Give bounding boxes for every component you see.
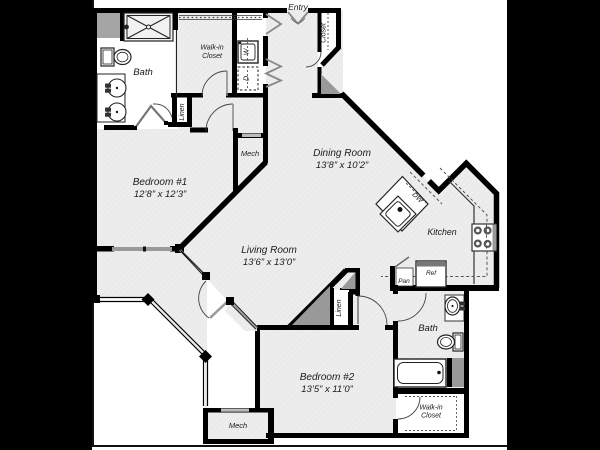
svg-text:Entry: Entry (288, 2, 309, 12)
svg-text:Walk-in: Walk-in (200, 45, 223, 52)
svg-text:Closet: Closet (421, 413, 442, 420)
svg-text:Linen: Linen (179, 103, 186, 120)
svg-text:Closet: Closet (321, 22, 328, 43)
svg-text:Bedroom #2: Bedroom #2 (300, 372, 355, 383)
svg-text:Pan: Pan (398, 278, 410, 285)
svg-text:D: D (244, 76, 251, 81)
svg-text:Bath: Bath (418, 323, 438, 334)
svg-text:Linen: Linen (336, 299, 343, 316)
svg-text:Living Room: Living Room (241, 245, 297, 256)
svg-text:Walk-in: Walk-in (419, 405, 442, 412)
svg-text:12’8” x 12’3”: 12’8” x 12’3” (134, 189, 187, 200)
svg-text:Mech: Mech (241, 149, 259, 158)
svg-text:Bedroom #1: Bedroom #1 (133, 177, 187, 188)
svg-text:13’6” x 13’0”: 13’6” x 13’0” (243, 257, 296, 268)
svg-text:Closet: Closet (202, 53, 223, 60)
svg-text:Kitchen: Kitchen (427, 227, 456, 237)
svg-text:Bath: Bath (133, 67, 153, 78)
svg-text:Ref: Ref (426, 270, 437, 277)
svg-text:Dining Room: Dining Room (313, 148, 371, 159)
svg-text:Mech: Mech (229, 421, 247, 430)
svg-text:13’8” x 10’2”: 13’8” x 10’2” (316, 160, 369, 171)
svg-text:13’5” x 11’0”: 13’5” x 11’0” (301, 384, 353, 395)
